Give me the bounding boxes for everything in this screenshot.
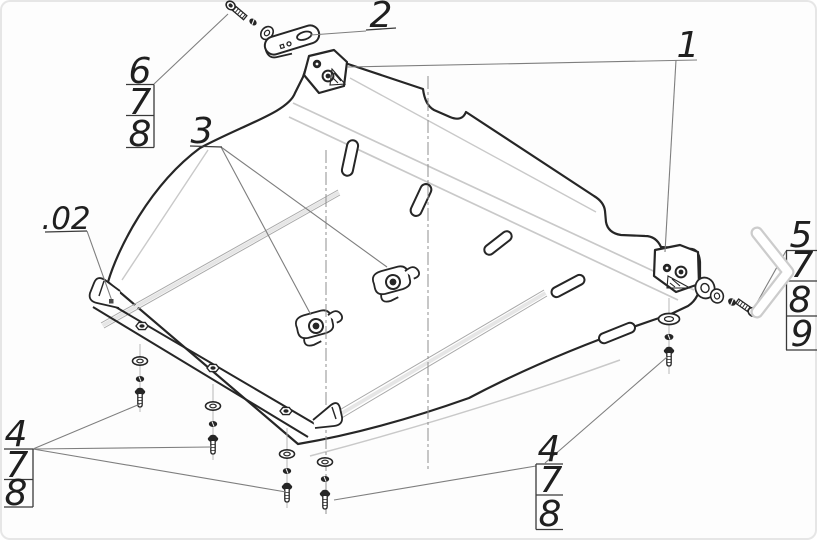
callout-item: 8 xyxy=(5,473,28,514)
chevron-right-icon xyxy=(757,233,788,312)
spring-washer-8 xyxy=(248,17,258,27)
callout-stack-bottom-right: 4 7 8 xyxy=(538,429,563,535)
top-bracket-group xyxy=(224,0,322,61)
diagram-canvas: 1 2 3 .02 6 7 8 5 7 8 9 4 7 8 4 7 8 xyxy=(0,0,817,540)
callout-02-subassembly: .02 xyxy=(41,201,90,237)
callout-1-plate: 1 xyxy=(677,25,700,66)
fastener-stack xyxy=(133,357,148,407)
callout-stack-top-left: 6 7 8 xyxy=(129,51,152,155)
leader-end-marker xyxy=(109,299,114,304)
technical-drawing: 1 2 3 .02 6 7 8 5 7 8 9 4 7 8 4 7 8 xyxy=(0,0,817,540)
callout-stack-bottom-left: 4 7 8 xyxy=(5,414,29,514)
callout-item: 8 xyxy=(539,494,562,535)
callout-stack-right: 5 7 8 9 xyxy=(789,215,814,355)
callout-item: 8 xyxy=(129,114,152,155)
right-fastener-group xyxy=(693,275,759,318)
callout-3-clamp: 3 xyxy=(191,111,214,152)
callout-item: 9 xyxy=(791,314,814,355)
fastener-stack xyxy=(318,458,333,509)
fastener-stack xyxy=(659,314,680,367)
callout-2-bracket: 2 xyxy=(370,0,393,36)
bolt-6 xyxy=(224,0,247,21)
